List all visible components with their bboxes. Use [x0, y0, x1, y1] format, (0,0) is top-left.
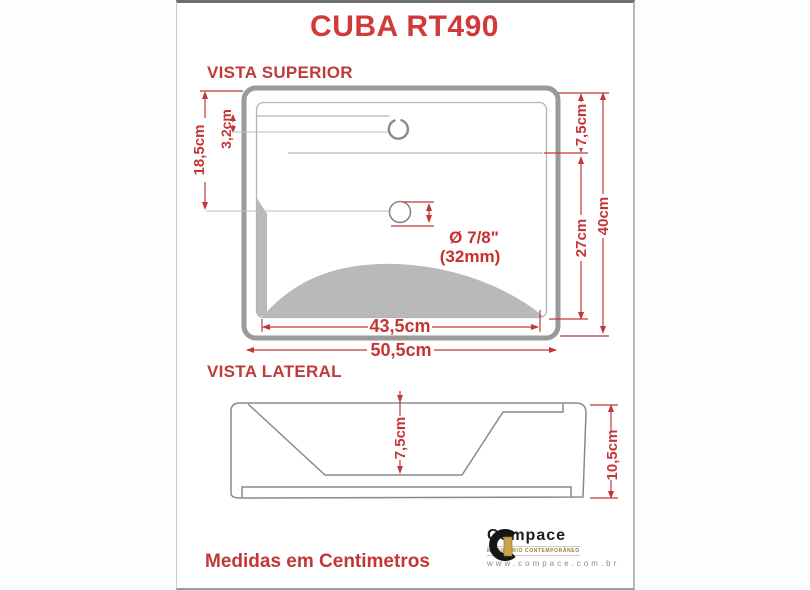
drain-diameter-inch: Ø 7/8": [449, 228, 499, 247]
top-view-label: VISTA SUPERIOR: [207, 63, 353, 83]
top-view-drawing: [206, 88, 558, 338]
side-foot-seam: [242, 487, 571, 497]
units-note: Medidas em Centimetros: [205, 551, 430, 573]
dim-label-50-5: 50,5cm: [370, 340, 431, 360]
side-arrowheads: [397, 395, 614, 499]
diagram-page: 18,5cm 3,2cm 7,5cm 27cm 40cm 43,5cm 50,5…: [0, 0, 810, 590]
dim-label-18-5: 18,5cm: [191, 125, 208, 176]
side-view-label: VISTA LATERAL: [207, 362, 342, 382]
drain-diameter-mm: (32mm): [440, 247, 500, 266]
dim-label-side-7-5: 7,5cm: [392, 417, 409, 460]
dim-label-7-5: 7,5cm: [573, 104, 590, 147]
gold-bar: [504, 537, 512, 556]
dim-label-10-5: 10,5cm: [604, 430, 621, 481]
technical-drawing: 18,5cm 3,2cm 7,5cm 27cm 40cm 43,5cm 50,5…: [0, 0, 810, 590]
page-title: CUBA RT490: [176, 10, 633, 44]
dim-label-3-2: 3,2cm: [218, 109, 234, 149]
dim-label-27: 27cm: [573, 219, 590, 257]
compace-c-icon: [487, 528, 517, 562]
drain-hole: [390, 202, 411, 223]
dim-label-43-5: 43,5cm: [369, 316, 430, 336]
dim-label-40: 40cm: [595, 197, 612, 235]
left-shading: [257, 198, 267, 316]
brand-logo: Compace MOBILIÁRIO CONTEMPORÂNEO www.com…: [487, 528, 627, 568]
logo-row: Compace MOBILIÁRIO CONTEMPORÂNEO: [487, 528, 627, 556]
